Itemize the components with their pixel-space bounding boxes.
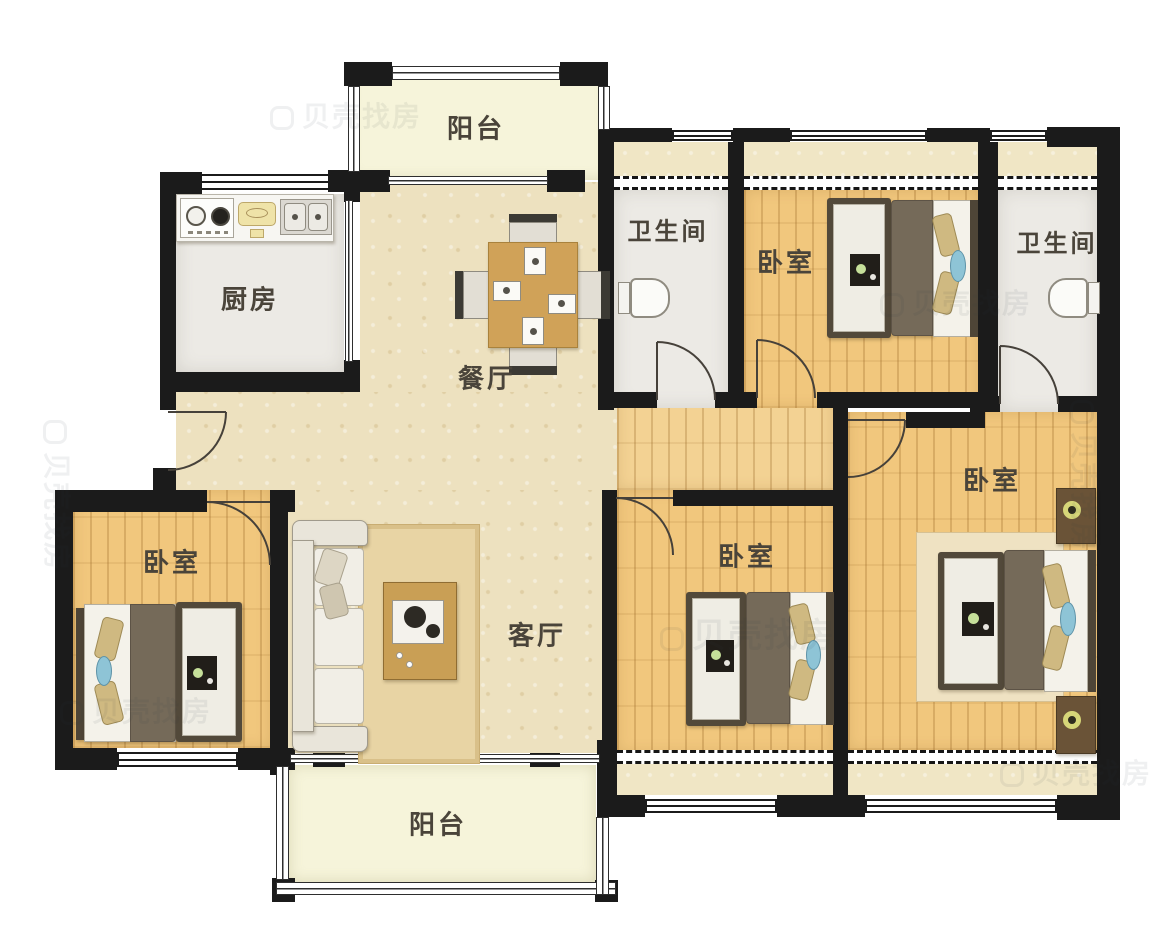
room-label-kitchen: 厨房 xyxy=(221,280,279,317)
wall-segment xyxy=(927,128,990,142)
watermark-logo-icon xyxy=(270,106,294,130)
foyer-floor xyxy=(176,392,602,490)
balcony-railing xyxy=(276,882,616,895)
dining-chair-icon xyxy=(577,271,603,319)
dining-chair-icon xyxy=(601,271,610,319)
plate-icon xyxy=(558,300,565,307)
wall-segment xyxy=(560,62,608,86)
room-label-balcony-bottom: 阳台 xyxy=(409,805,467,842)
hood-vent-icon xyxy=(246,208,268,218)
watermark: 贝壳找房 xyxy=(1065,400,1105,552)
bay-strip xyxy=(998,142,1097,176)
wall-segment xyxy=(55,748,117,770)
duvet-icon xyxy=(1004,550,1044,690)
toilet-icon xyxy=(618,282,630,314)
watermark: 贝壳找房 xyxy=(1000,752,1152,792)
sofa-cushion-icon xyxy=(314,668,364,724)
balcony-railing xyxy=(392,66,560,80)
watermark: 贝壳找房 xyxy=(880,282,1032,322)
teapot-icon xyxy=(404,606,426,628)
watermark-logo-icon xyxy=(43,420,67,444)
hood-switch-icon xyxy=(250,229,264,238)
round-pillow-icon xyxy=(96,656,112,686)
window xyxy=(117,752,238,767)
indicator-dot xyxy=(193,668,203,678)
wall-segment xyxy=(160,372,348,392)
room-label-bedroom-topright: 卧室 xyxy=(757,243,815,280)
dining-chair-icon xyxy=(509,366,557,375)
wall-segment xyxy=(597,795,645,817)
sliding-door-line xyxy=(388,176,548,185)
bay-window-dashed xyxy=(744,176,978,190)
room-label-bedroom-right: 卧室 xyxy=(963,461,1021,498)
hall-floor xyxy=(602,408,617,490)
wall-segment xyxy=(673,490,848,506)
drain-icon xyxy=(292,214,298,220)
wall-segment xyxy=(547,170,585,192)
drain-icon xyxy=(315,214,321,220)
wall-segment xyxy=(344,172,360,202)
balcony-railing xyxy=(596,817,609,895)
window xyxy=(790,130,927,141)
wall-segment xyxy=(1057,795,1120,820)
wall-segment xyxy=(602,490,617,775)
watermark: 贝壳找房 xyxy=(38,420,78,572)
toilet-icon xyxy=(630,278,670,318)
wall-segment xyxy=(715,392,757,408)
balcony-railing xyxy=(598,86,610,130)
toilet-icon xyxy=(1048,278,1088,318)
indicator-dot xyxy=(724,660,730,666)
teacup-icon xyxy=(426,624,440,638)
window xyxy=(200,174,330,190)
wall-segment xyxy=(906,412,985,428)
indicator-dot xyxy=(968,613,979,624)
window xyxy=(672,130,733,141)
watermark-logo-icon xyxy=(1070,400,1094,424)
wall-segment xyxy=(344,62,392,86)
stove-burner-icon xyxy=(211,207,230,226)
plate-icon xyxy=(503,287,510,294)
indicator-dot xyxy=(870,274,876,280)
floorplan-canvas: 阳台 厨房 餐厅 卫生间 卧室 卫生间 卧室 客厅 卧室 卧室 阳台 贝壳找房 … xyxy=(0,0,1175,952)
bay-window-dashed xyxy=(614,176,728,190)
room-label-dining: 餐厅 xyxy=(458,359,516,396)
indicator-dot xyxy=(207,678,213,684)
indicator-dot xyxy=(983,624,989,630)
dining-chair-icon xyxy=(463,271,489,319)
stove-dial-icon xyxy=(186,206,206,226)
bay-strip xyxy=(744,142,978,176)
window xyxy=(865,799,1057,813)
plate-icon xyxy=(530,328,537,335)
bay-window-dashed xyxy=(998,176,1097,190)
window xyxy=(990,130,1047,141)
wall-segment xyxy=(270,490,288,775)
wall-segment xyxy=(344,360,360,392)
indicator-dot xyxy=(856,264,866,274)
room-label-bathroom-right: 卫生间 xyxy=(1017,224,1098,259)
stove-buttons-icon xyxy=(188,231,228,234)
wall-segment xyxy=(600,128,672,142)
window xyxy=(645,799,777,813)
room-label-living: 客厅 xyxy=(508,616,566,653)
wall-segment xyxy=(598,392,657,408)
balcony-railing xyxy=(276,766,289,880)
room-label-bedroom-left: 卧室 xyxy=(143,543,201,580)
wall-segment xyxy=(777,795,865,817)
bay-strip xyxy=(614,142,728,176)
teacup-icon xyxy=(406,661,413,668)
round-pillow-icon xyxy=(950,250,966,282)
bay-strip xyxy=(617,764,833,795)
wall-segment xyxy=(978,142,998,408)
watermark-logo-icon xyxy=(880,293,904,317)
wall-segment xyxy=(598,128,614,410)
room-label-balcony-top: 阳台 xyxy=(447,109,505,146)
teacup-icon xyxy=(396,652,403,659)
bed-headboard-icon xyxy=(1088,550,1096,692)
toilet-icon xyxy=(1088,282,1100,314)
watermark: 贝壳找房 xyxy=(60,690,212,730)
watermark: 贝壳找房 xyxy=(270,95,422,135)
wall-segment xyxy=(733,128,790,142)
plate-icon xyxy=(532,258,539,265)
watermark: 贝壳找房 xyxy=(660,608,836,657)
wall-segment xyxy=(728,142,744,408)
lamp-icon xyxy=(1063,711,1081,729)
sliding-door-line xyxy=(345,200,353,362)
sofa-icon xyxy=(292,540,314,732)
room-label-bathroom-left: 卫生间 xyxy=(628,212,709,247)
watermark-logo-icon xyxy=(660,627,684,651)
bay-window-dashed xyxy=(617,750,833,764)
round-pillow-icon xyxy=(1060,602,1076,636)
room-label-bedroom-middle: 卧室 xyxy=(718,537,776,574)
watermark-logo-icon xyxy=(1000,763,1024,787)
wall-segment xyxy=(970,396,1000,412)
watermark-logo-icon xyxy=(60,701,84,725)
